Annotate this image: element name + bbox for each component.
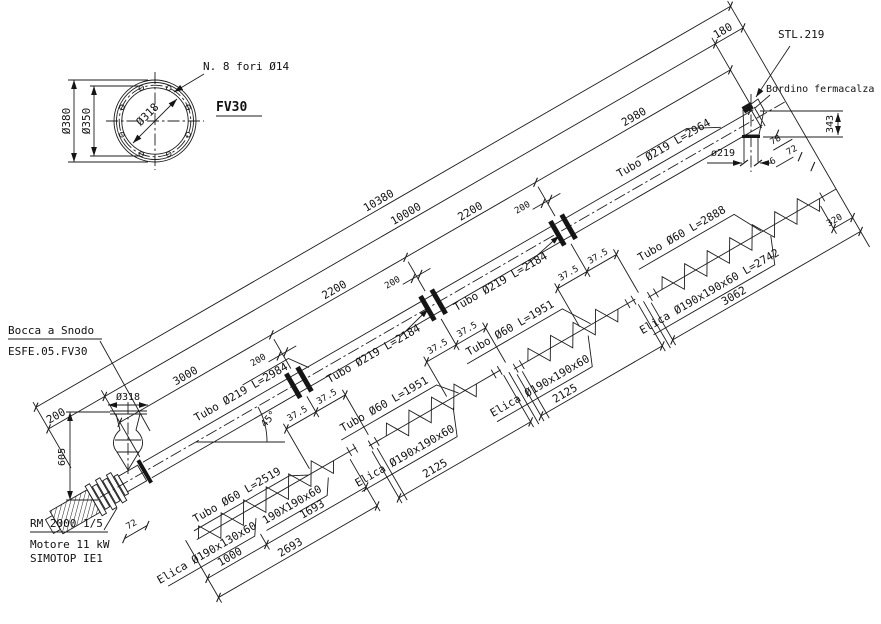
dim-flange-bolt: Ø350: [80, 108, 93, 135]
dim-stub: 37.5: [426, 338, 450, 358]
dim-motor-shaft: 72: [125, 518, 139, 532]
dim-stub: 37.5: [315, 388, 339, 408]
tube-labels: Tubo Ø219 L=2984 Tubo Ø219 L=2184 Tubo Ø…: [192, 113, 736, 454]
spiral-label-3: Elica Ø190x190x60: [488, 352, 592, 420]
spiral-labels: Elica Ø190x130x60 190X190x60 Elica Ø190x…: [155, 224, 785, 611]
dim-stub: 37.5: [557, 264, 581, 284]
technical-drawing-page: Ø318 Ø380 Ø350 N. 8 fori Ø14 FV30: [0, 0, 881, 624]
gearbox-label: RM 2000 1/5: [30, 517, 103, 530]
dim-span: 10000: [388, 200, 423, 228]
incline-angle: 45°: [259, 409, 279, 430]
dim-bore: Ø318: [134, 101, 162, 129]
rim-note-label: Bordino fermacalza: [766, 84, 874, 95]
dim-total: 10380: [361, 187, 396, 215]
stub-dimensions: 37.5 37.5 37.5 37.5 37.5 37.5: [277, 230, 621, 446]
motor-type-label: SIMOTOP IE1: [30, 552, 103, 565]
support-label: STL.219: [778, 28, 824, 41]
motor-label: Motore 11 kW: [30, 538, 110, 551]
dim-start-offset: 200: [44, 405, 68, 426]
inlet-name: Bocca a Snodo: [8, 324, 94, 337]
dim-inlet-opening: Ø318: [116, 391, 140, 403]
dim-stub: 37.5: [455, 321, 479, 341]
tube-label-3: Tubo Ø219 L=2184: [451, 249, 550, 313]
flange-code: FV30: [216, 100, 247, 115]
spiral-label-2: Elica Ø190x190x60: [353, 422, 457, 490]
dim-stub: 37.5: [286, 405, 310, 425]
dim-rim: 6: [768, 156, 778, 167]
flange-detail-view: Ø318 Ø380 Ø350 N. 8 fori Ø14 FV30: [60, 60, 289, 170]
drive-labels: RM 2000 1/5 Motore 11 kW SIMOTOP IE1: [30, 508, 117, 565]
dim-joint-gap-3: 200: [513, 200, 532, 217]
dim-stub: 37.5: [586, 247, 610, 267]
screw-conveyor-drawing: Ø318 Ø380 Ø350 N. 8 fori Ø14 FV30: [0, 0, 881, 624]
dim-inlet-height: 605: [57, 448, 68, 466]
conveyor-assembly: 72 3000 2200 2200 2980 200 200 200 200 1…: [0, 0, 873, 624]
dim-outlet-b: 72: [785, 144, 799, 158]
dim-flange-outer: Ø380: [60, 108, 73, 135]
dim-joint-gap-1: 200: [249, 352, 268, 369]
dim-end-offset: 180: [711, 20, 735, 41]
inlet-code: ESFE.05.FV30: [8, 345, 87, 358]
screw-label-2: Tubo Ø60 L=1951: [338, 374, 431, 435]
extension-lines: [33, 1, 870, 624]
dim-outlet-pipe: ø219: [711, 148, 735, 159]
holes-note: N. 8 fori Ø14: [203, 60, 289, 73]
dim-joint-gap-2: 200: [383, 275, 402, 292]
tube-label-2: Tubo Ø219 L=2184: [324, 322, 423, 386]
dim-outlet-height: 343: [825, 115, 836, 133]
